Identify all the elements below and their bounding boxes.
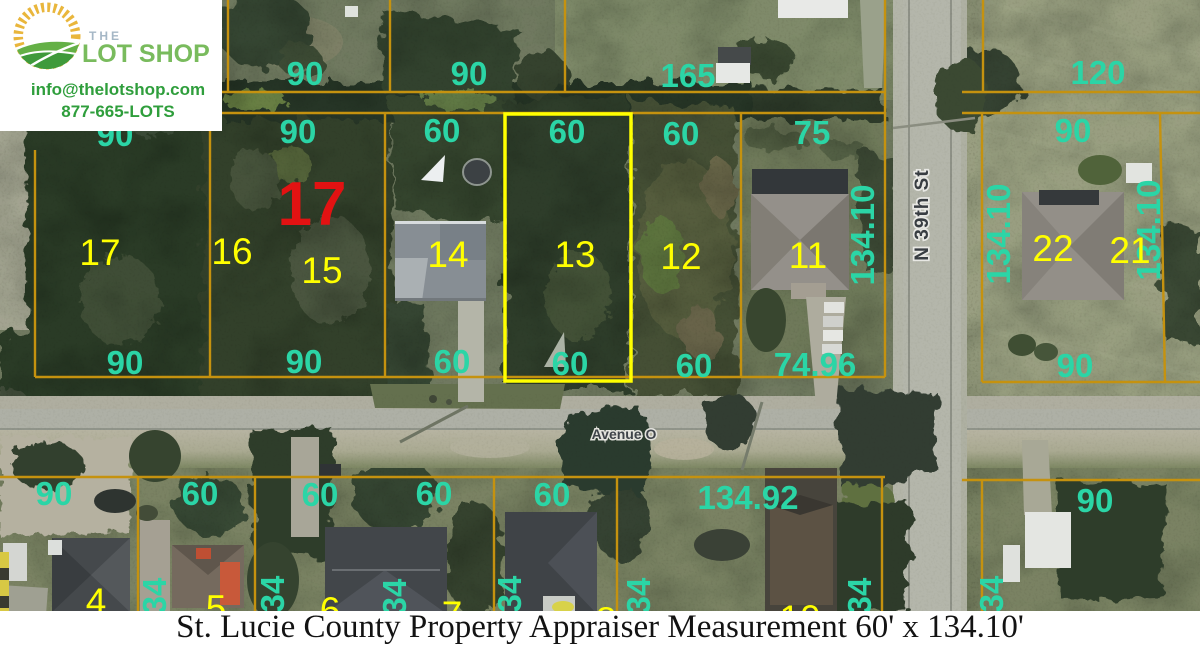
svg-text:60: 60 (424, 112, 461, 149)
svg-text:22: 22 (1032, 228, 1073, 269)
svg-text:90: 90 (1057, 347, 1094, 384)
svg-text:34: 34 (491, 575, 528, 612)
svg-text:34: 34 (973, 575, 1010, 612)
svg-text:13: 13 (554, 234, 595, 275)
svg-text:90: 90 (287, 55, 324, 92)
svg-text:17: 17 (79, 232, 120, 273)
svg-text:14: 14 (427, 234, 468, 275)
svg-text:60: 60 (663, 115, 700, 152)
svg-text:120: 120 (1070, 54, 1125, 91)
svg-text:165: 165 (660, 57, 715, 94)
svg-text:34: 34 (254, 575, 291, 612)
svg-text:60: 60 (434, 343, 471, 380)
svg-text:134.92: 134.92 (698, 479, 799, 516)
svg-text:90: 90 (1055, 112, 1092, 149)
svg-text:60: 60 (302, 476, 339, 513)
svg-text:60: 60 (552, 345, 589, 382)
svg-text:15: 15 (301, 250, 342, 291)
svg-text:134.10: 134.10 (980, 184, 1017, 285)
svg-text:21: 21 (1109, 230, 1150, 271)
svg-text:90: 90 (280, 113, 317, 150)
svg-text:90: 90 (36, 475, 73, 512)
svg-text:16: 16 (211, 231, 252, 272)
svg-text:90: 90 (107, 344, 144, 381)
svg-text:74.96: 74.96 (774, 346, 857, 383)
svg-text:60: 60 (549, 113, 586, 150)
svg-text:Avenue O: Avenue O (592, 426, 657, 442)
svg-text:60: 60 (534, 476, 571, 513)
svg-text:90: 90 (1077, 482, 1114, 519)
svg-text:90: 90 (286, 343, 323, 380)
svg-text:75: 75 (794, 114, 831, 151)
svg-text:17: 17 (278, 170, 347, 239)
svg-text:60: 60 (182, 475, 219, 512)
svg-text:90: 90 (451, 55, 488, 92)
svg-text:60: 60 (676, 347, 713, 384)
svg-text:134.10: 134.10 (844, 185, 881, 286)
svg-text:11: 11 (789, 235, 827, 276)
svg-text:60: 60 (416, 475, 453, 512)
svg-text:12: 12 (660, 236, 701, 277)
svg-text:N 39th St: N 39th St (912, 169, 933, 260)
